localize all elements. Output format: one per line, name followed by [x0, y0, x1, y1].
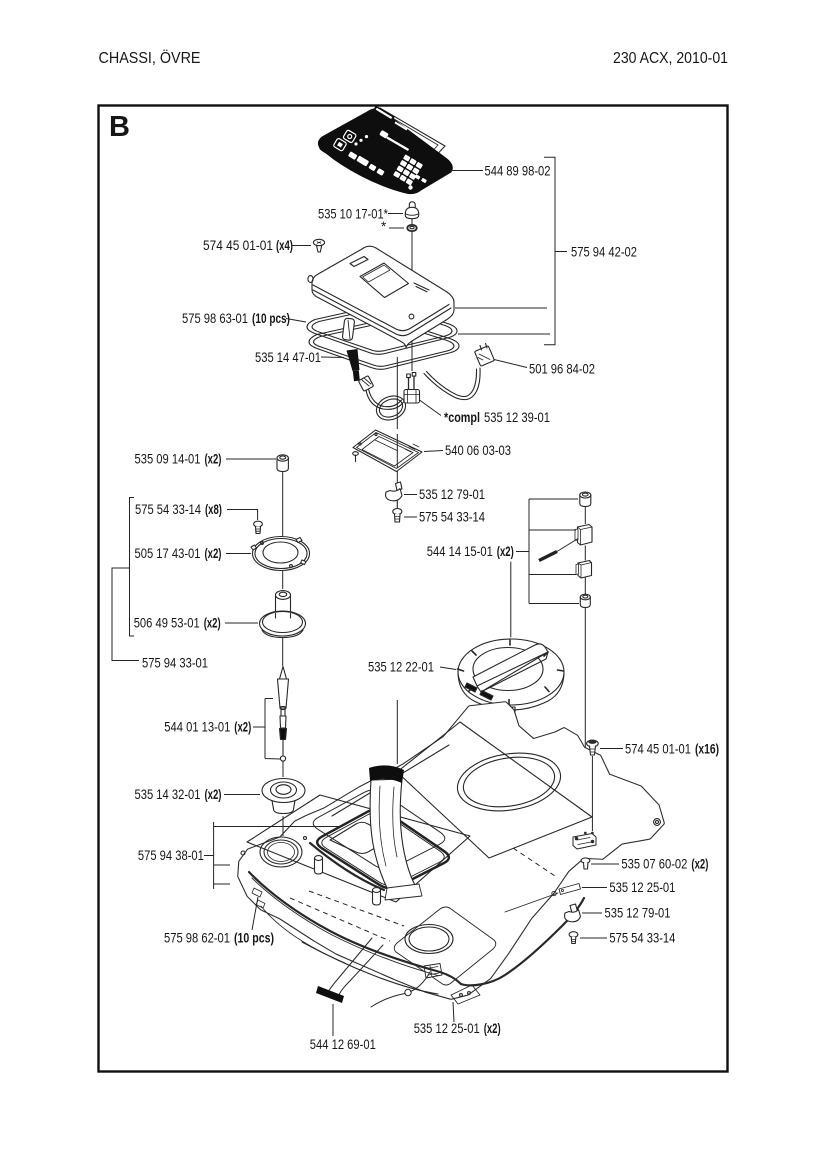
svg-text:230 ACX, 2010-01: 230 ACX, 2010-01	[613, 50, 728, 67]
svg-text:535 14 32-01: 535 14 32-01	[135, 787, 201, 802]
svg-text:(x2): (x2)	[204, 616, 221, 631]
svg-text:544 14 15-01: 544 14 15-01	[427, 544, 493, 559]
svg-text:575 94 42-02: 575 94 42-02	[571, 245, 637, 260]
svg-text:(x2): (x2)	[691, 857, 708, 872]
svg-text:(x8): (x8)	[205, 502, 222, 517]
svg-text:(x2): (x2)	[234, 720, 251, 735]
svg-text:(x16): (x16)	[695, 742, 719, 757]
svg-text:(x2): (x2)	[484, 1021, 501, 1036]
svg-text:575 98 63-01: 575 98 63-01	[182, 311, 248, 326]
svg-text:535 14 47-01: 535 14 47-01	[255, 350, 321, 365]
svg-text:575 94 38-01: 575 94 38-01	[138, 848, 204, 863]
svg-text:535 12 25-01: 535 12 25-01	[609, 880, 675, 895]
svg-text:535 10 17-01*: 535 10 17-01*	[318, 207, 389, 222]
svg-text:(x2): (x2)	[205, 452, 222, 467]
svg-text:575 54 33-14: 575 54 33-14	[419, 510, 485, 525]
svg-text:535 12 25-01: 535 12 25-01	[414, 1021, 480, 1036]
svg-text:(x2): (x2)	[205, 787, 222, 802]
svg-text:535 12 39-01: 535 12 39-01	[484, 410, 550, 425]
svg-text:*compl: *compl	[444, 410, 480, 425]
svg-text:575 94 33-01: 575 94 33-01	[142, 656, 208, 671]
svg-text:574 45 01-01: 574 45 01-01	[203, 238, 273, 253]
svg-text:(x4): (x4)	[276, 238, 293, 253]
svg-text:535 07 60-02: 535 07 60-02	[621, 857, 687, 872]
svg-text:535 12 22-01: 535 12 22-01	[368, 660, 434, 675]
svg-text:544 01 13-01: 544 01 13-01	[164, 720, 230, 735]
svg-text:544 89 98-02: 544 89 98-02	[485, 164, 551, 179]
svg-text:535 12 79-01: 535 12 79-01	[419, 487, 485, 502]
svg-text:(x2): (x2)	[205, 546, 222, 561]
svg-text:(10 pcs): (10 pcs)	[252, 311, 290, 326]
svg-text:B: B	[109, 111, 130, 143]
svg-text:501 96 84-02: 501 96 84-02	[529, 362, 595, 377]
svg-text:*: *	[381, 219, 387, 234]
svg-text:544 12 69-01: 544 12 69-01	[310, 1037, 376, 1052]
svg-text:CHASSI, ÖVRE: CHASSI, ÖVRE	[99, 49, 201, 67]
svg-text:574 45 01-01: 574 45 01-01	[625, 742, 691, 757]
svg-text:540 06 03-03: 540 06 03-03	[445, 443, 511, 458]
svg-text:(x2): (x2)	[497, 544, 514, 559]
svg-text:575 54 33-14: 575 54 33-14	[135, 502, 201, 517]
svg-text:575 54 33-14: 575 54 33-14	[609, 931, 675, 946]
svg-text:505 17 43-01: 505 17 43-01	[135, 546, 201, 561]
svg-text:575 98 62-01: 575 98 62-01	[164, 931, 230, 946]
svg-text:535 12 79-01: 535 12 79-01	[605, 906, 671, 921]
svg-text:535 09 14-01: 535 09 14-01	[135, 452, 201, 467]
svg-text:(10 pcs): (10 pcs)	[234, 931, 274, 946]
svg-text:506 49 53-01: 506 49 53-01	[134, 616, 200, 631]
